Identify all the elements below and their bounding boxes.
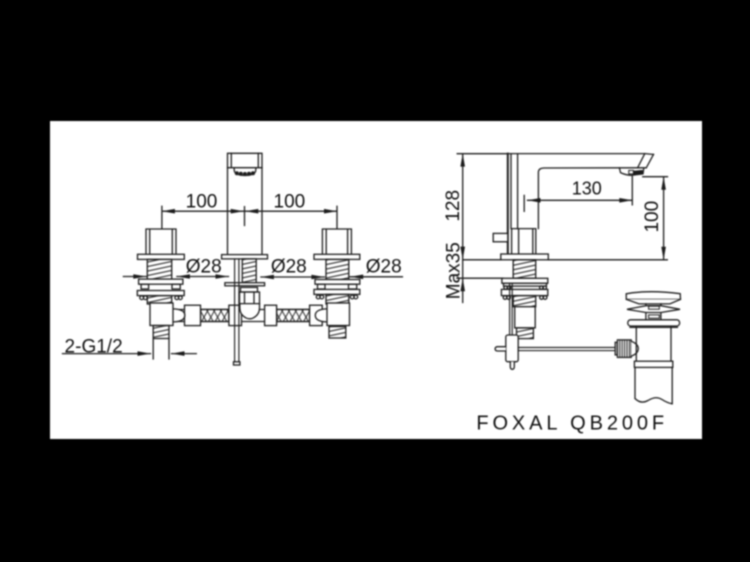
svg-text:100: 100 [642, 201, 663, 233]
svg-text:Max35: Max35 [443, 242, 464, 299]
svg-text:Ø28: Ø28 [271, 256, 307, 277]
svg-text:Ø28: Ø28 [186, 256, 222, 277]
svg-text:128: 128 [443, 190, 464, 222]
svg-text:100: 100 [274, 192, 306, 213]
svg-text:FOXAL QB200F: FOXAL QB200F [476, 412, 668, 434]
svg-text:2-G1/2: 2-G1/2 [65, 337, 123, 358]
svg-text:100: 100 [186, 192, 218, 213]
svg-text:Ø28: Ø28 [366, 256, 402, 277]
svg-text:130: 130 [572, 178, 602, 198]
